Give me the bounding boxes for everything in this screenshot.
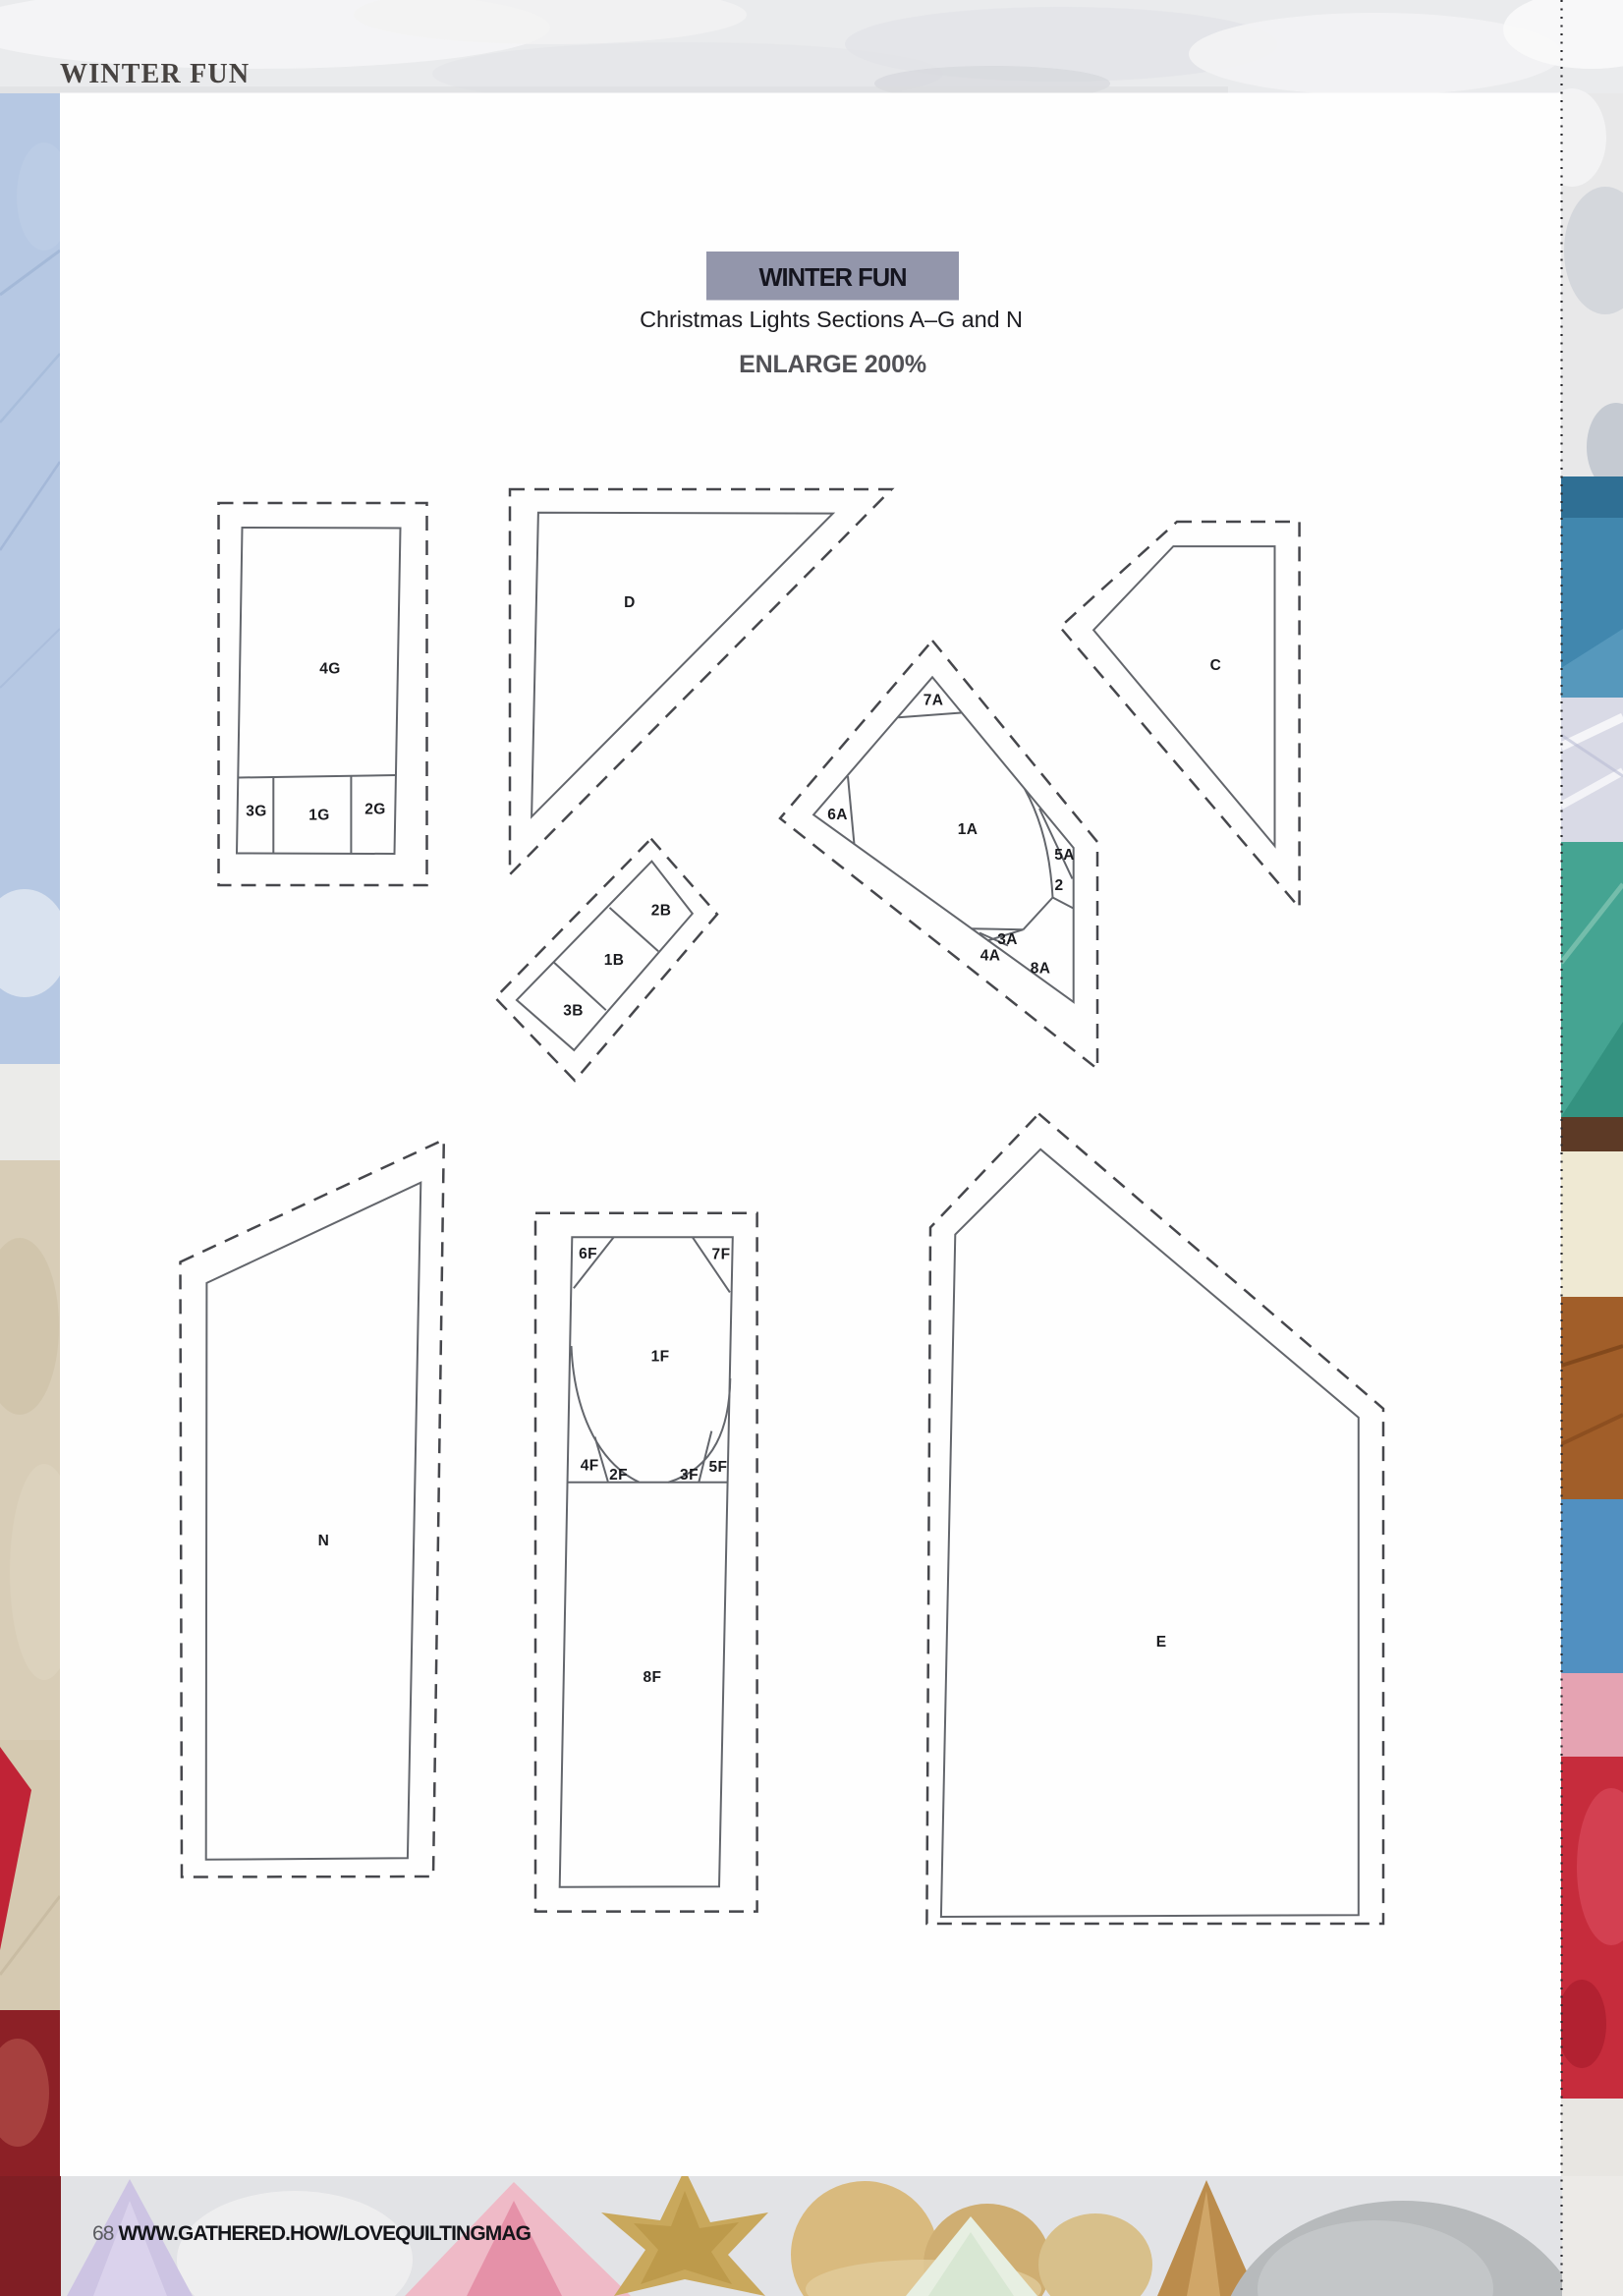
- svg-text:5A: 5A: [1054, 847, 1075, 864]
- svg-text:Christmas Lights Sections A–G: Christmas Lights Sections A–G and N: [640, 307, 1023, 332]
- svg-text:WINTER FUN: WINTER FUN: [758, 264, 906, 292]
- svg-text:D: D: [624, 594, 636, 611]
- svg-text:3A: 3A: [997, 931, 1018, 948]
- svg-text:7A: 7A: [923, 693, 944, 709]
- svg-text:1G: 1G: [308, 808, 329, 824]
- svg-text:ENLARGE 200%: ENLARGE 200%: [739, 351, 926, 378]
- svg-text:WINTER FUN: WINTER FUN: [60, 59, 250, 89]
- svg-text:1B: 1B: [604, 952, 625, 969]
- svg-text:N: N: [318, 1533, 330, 1549]
- svg-text:4A: 4A: [980, 948, 1001, 965]
- svg-text:7F: 7F: [712, 1246, 731, 1262]
- svg-text:4F: 4F: [581, 1457, 599, 1474]
- svg-text:2B: 2B: [651, 903, 672, 920]
- svg-text:6A: 6A: [827, 807, 848, 823]
- svg-text:4G: 4G: [319, 661, 340, 678]
- svg-text:5F: 5F: [708, 1459, 727, 1476]
- svg-text:3F: 3F: [680, 1467, 699, 1484]
- svg-text:1A: 1A: [958, 821, 979, 838]
- svg-text:2F: 2F: [609, 1467, 628, 1484]
- svg-text:8F: 8F: [643, 1669, 661, 1686]
- svg-text:8A: 8A: [1031, 961, 1051, 978]
- svg-text:68 WWW.GATHERED.HOW/LOVEQUILTI: 68 WWW.GATHERED.HOW/LOVEQUILTINGMAG: [92, 2222, 532, 2245]
- svg-text:2G: 2G: [364, 802, 385, 818]
- svg-text:2: 2: [1054, 877, 1063, 894]
- svg-text:6F: 6F: [579, 1246, 597, 1262]
- svg-text:1F: 1F: [651, 1348, 670, 1365]
- svg-text:3G: 3G: [246, 804, 266, 820]
- svg-text:E: E: [1156, 1634, 1167, 1651]
- svg-text:3B: 3B: [563, 1003, 584, 1020]
- svg-text:C: C: [1210, 657, 1222, 674]
